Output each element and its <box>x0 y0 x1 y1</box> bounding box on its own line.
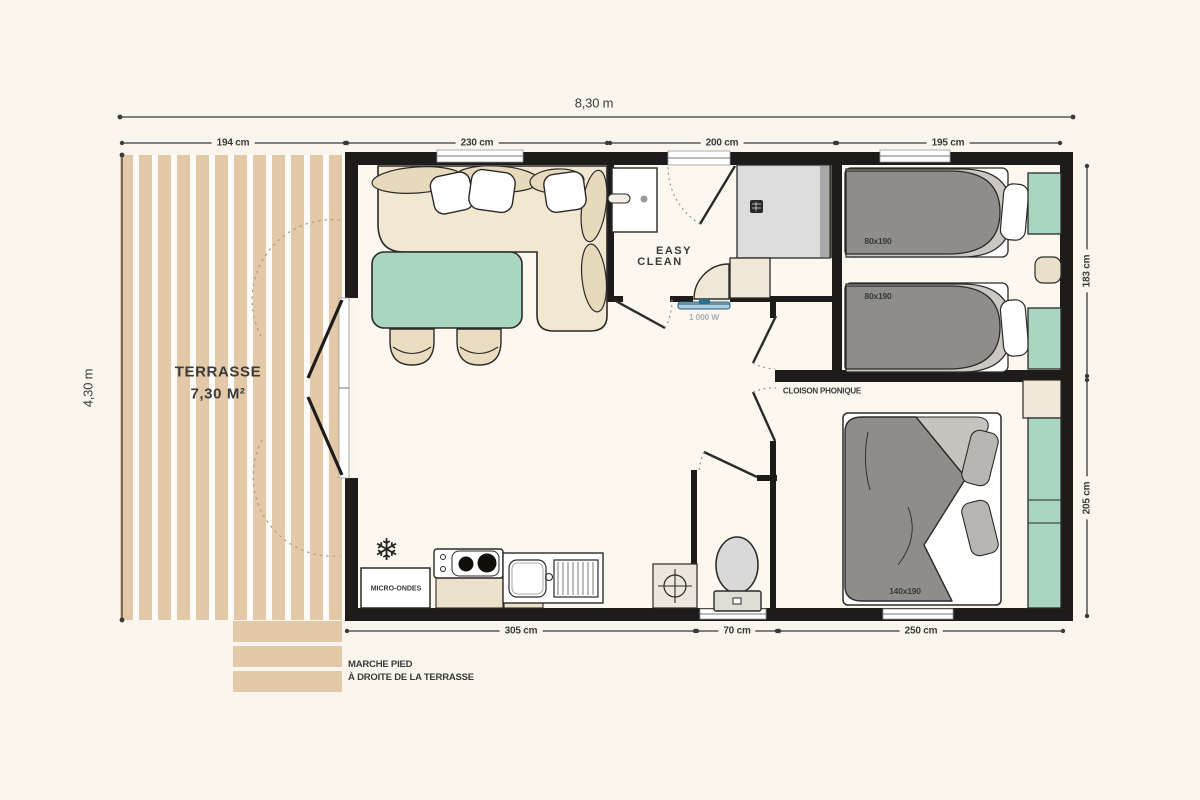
footnote-line2: À DROITE DE LA TERRASSE <box>348 671 474 684</box>
terrace-name: TERRASSE <box>175 364 261 381</box>
floor-plan: 8,30 m 4,30 m 194 cm 230 cm 200 cm 195 c… <box>0 0 1200 800</box>
terrace-area: 7,30 M² <box>190 386 245 403</box>
easy-clean-logo-bottom: CLEAN <box>637 256 682 268</box>
dim-bottom-kitchen: 305 cm <box>500 626 543 637</box>
water-heater <box>653 564 697 608</box>
twin-bed1-size: 80x190 <box>864 236 891 246</box>
sofa-pillows <box>428 168 587 216</box>
overall-width-label: 8,30 m <box>575 96 614 111</box>
dim-top-bathroom: 200 cm <box>701 138 744 149</box>
heater-power-label: 1 000 W <box>689 312 719 322</box>
bedside-table <box>1035 257 1061 283</box>
dim-top-terrace: 194 cm <box>212 138 255 149</box>
stove <box>434 549 503 578</box>
dim-right-twin: 183 cm <box>1082 250 1093 293</box>
shower <box>737 165 830 258</box>
french-door-leaves <box>308 300 342 475</box>
plan-drawing <box>0 0 1200 800</box>
corner-unit <box>1023 380 1061 418</box>
washbasin <box>608 168 657 232</box>
dim-top-bedroom: 195 cm <box>927 138 970 149</box>
dim-right-master: 205 cm <box>1082 477 1093 520</box>
dim-top-living: 230 cm <box>456 138 499 149</box>
headboard-shelf <box>1028 308 1061 369</box>
master-bed-size: 140x190 <box>889 586 921 596</box>
bathroom-cabinet <box>730 258 770 298</box>
twin-bed2-size: 80x190 <box>864 291 891 301</box>
cabinet <box>436 578 503 608</box>
pillow <box>1000 299 1030 357</box>
dim-bottom-master: 250 cm <box>900 626 943 637</box>
pillow <box>1000 183 1030 241</box>
overall-depth-label: 4,30 m <box>81 369 96 408</box>
dining-table <box>372 252 522 328</box>
master-wardrobe <box>1028 418 1061 608</box>
floor-plan-page: { "plan": { "overall": { "width_label": … <box>0 0 1200 800</box>
french-door-swing-arcs <box>252 220 340 557</box>
microwave-label: MICRO-ONDES <box>371 586 422 593</box>
headboard-shelf <box>1028 173 1061 234</box>
sink <box>503 553 603 603</box>
toilet <box>714 537 761 611</box>
master-bed <box>843 413 1001 605</box>
footnote-line1: MARCHE PIED <box>348 658 412 671</box>
partition-label: CLOISON PHONIQUE <box>783 387 861 396</box>
dim-bottom-wc: 70 cm <box>718 626 755 637</box>
fridge-snowflake-icon: ❄ <box>374 536 399 566</box>
